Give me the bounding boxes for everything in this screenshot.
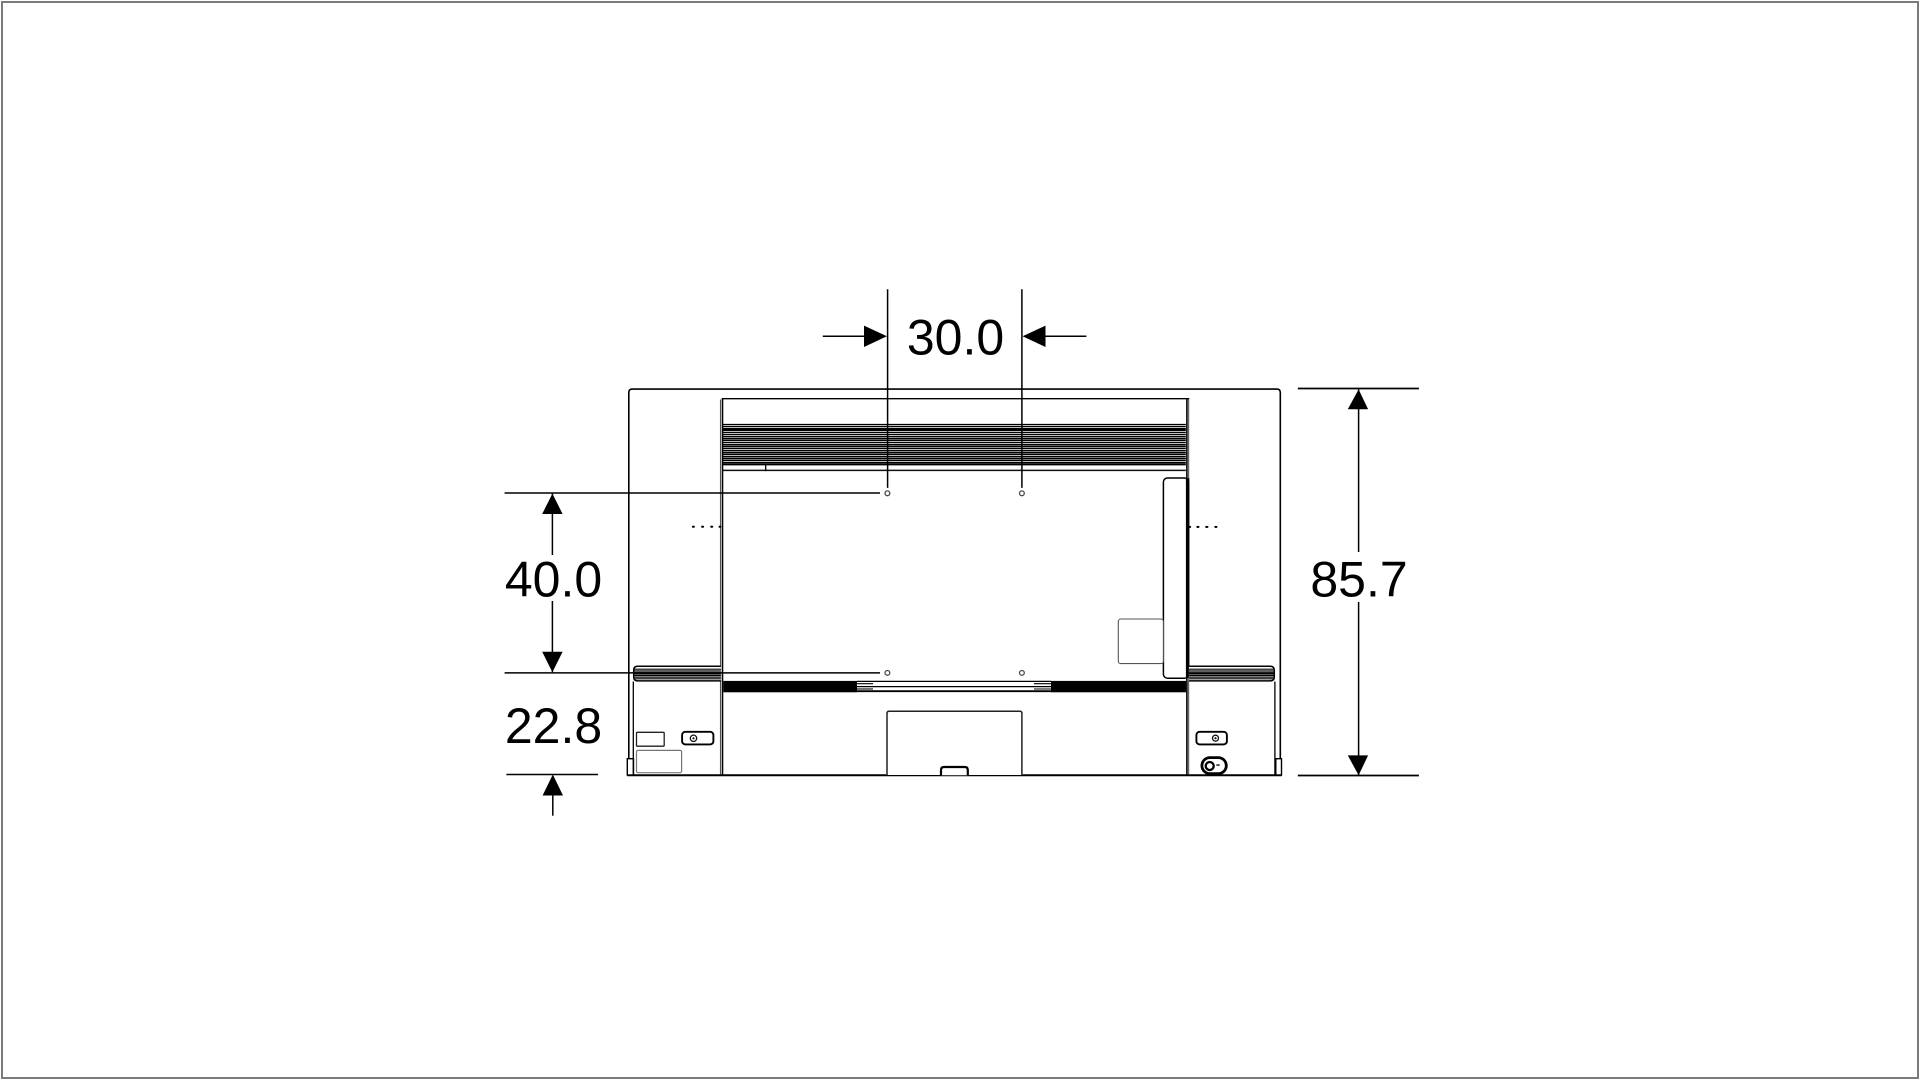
svg-text:85.7: 85.7	[1310, 551, 1407, 607]
svg-text:30.0: 30.0	[907, 310, 1004, 366]
svg-text:22.8: 22.8	[505, 698, 602, 754]
svg-text:40.0: 40.0	[505, 552, 602, 608]
